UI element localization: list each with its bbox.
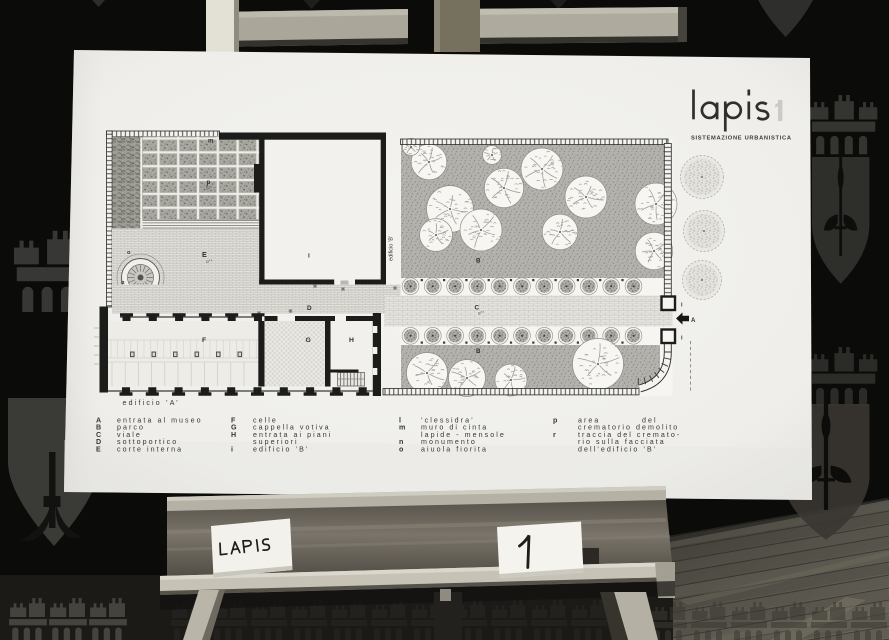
svg-text:A: A (691, 318, 696, 324)
svg-text:o°°: o°° (478, 311, 484, 316)
svg-text:o°°: o°° (206, 186, 212, 191)
svg-text:edificio ’A’: edificio ’A’ (123, 400, 180, 407)
svg-text:E: E (96, 445, 101, 453)
svg-text:D: D (307, 305, 312, 312)
svg-text:E: E (202, 250, 207, 259)
svg-text:o: o (127, 250, 131, 256)
svg-text:edificio ’B’: edificio ’B’ (253, 445, 310, 453)
svg-text:o°°: o°° (206, 259, 213, 265)
svg-text:H: H (231, 431, 236, 439)
svg-text:corte interna: corte interna (117, 445, 183, 453)
svg-text:aiuola fiorita: aiuola fiorita (421, 445, 488, 453)
svg-text:p: p (553, 417, 558, 425)
svg-text:edificio ’B’: edificio ’B’ (389, 236, 395, 261)
svg-text:del: del (642, 417, 658, 425)
svg-text:i: i (308, 253, 310, 260)
svg-text:i: i (231, 445, 233, 453)
svg-text:B: B (476, 348, 481, 355)
svg-text:H: H (349, 337, 354, 344)
svg-text:m: m (399, 424, 405, 432)
svg-text:G: G (306, 337, 311, 344)
svg-text:B: B (476, 258, 481, 265)
svg-text:o: o (399, 445, 404, 453)
svg-text:r: r (553, 431, 556, 439)
svg-text:SISTEMAZIONE URBANISTICA: SISTEMAZIONE URBANISTICA (691, 136, 792, 142)
svg-text:dell’edificio ’B’: dell’edificio ’B’ (578, 445, 657, 453)
svg-text:F: F (202, 337, 206, 344)
svg-text:m: m (208, 139, 213, 145)
